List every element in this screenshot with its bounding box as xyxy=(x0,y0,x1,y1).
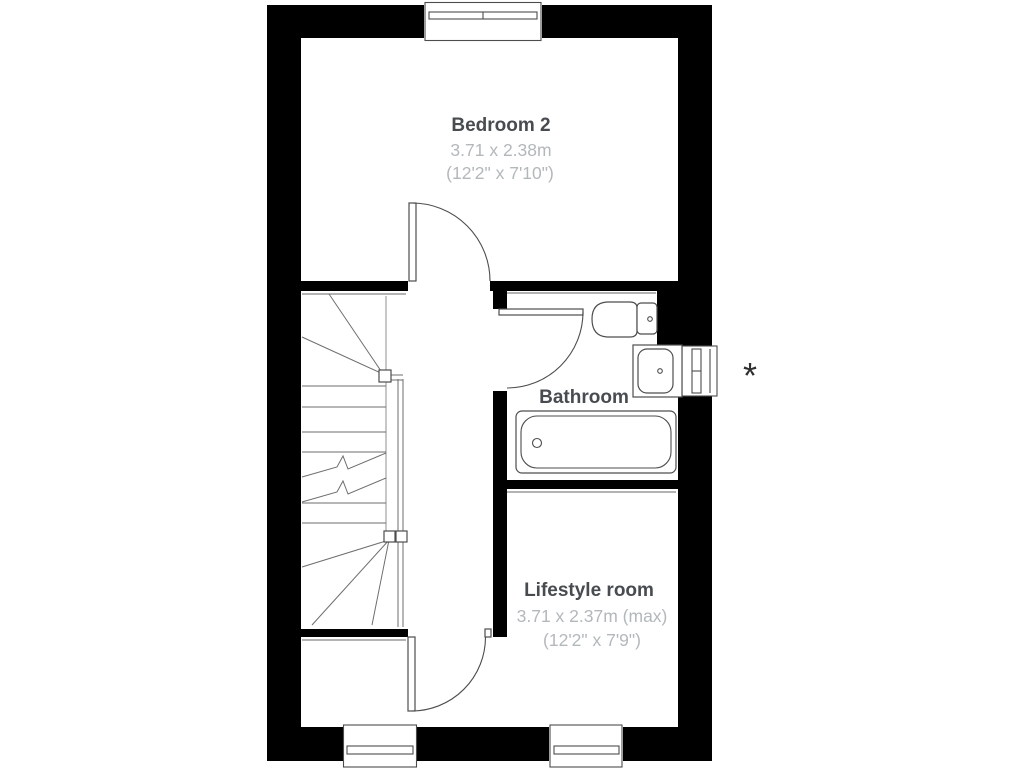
wall-stairs-south xyxy=(301,629,408,637)
window-glazing xyxy=(554,746,619,754)
door-bathroom xyxy=(499,309,583,388)
door-leaf xyxy=(408,637,415,711)
lifestyle-room-size-imperial: (12'2" x 7'9") xyxy=(543,630,641,650)
stair-winder-bottom-3 xyxy=(372,540,389,625)
stair-railing-upper xyxy=(398,379,403,531)
wall-bathroom-south xyxy=(507,480,678,489)
lifestyle-room-size-metric: 3.71 x 2.37m (max) xyxy=(517,606,668,626)
stair-winder-bottom-1 xyxy=(302,540,389,567)
door-swing-arc xyxy=(507,312,583,388)
window-lifestyle-south-right xyxy=(549,725,623,767)
stair-break-line-1 xyxy=(302,453,386,477)
wall-bathroom-west-upper xyxy=(493,281,507,309)
toilet-bowl xyxy=(592,302,637,337)
door-swing-arc xyxy=(412,203,490,281)
wall-bathroom-west-lower xyxy=(493,391,507,637)
floor-plan-page: Bedroom 2 3.71 x 2.38m (12'2" x 7'10") B… xyxy=(0,0,1024,768)
door-swing-arc xyxy=(412,637,486,711)
bedroom2-size-metric: 3.71 x 2.38m xyxy=(450,140,551,160)
bathroom-label: Bathroom xyxy=(539,387,629,408)
door-bedroom2 xyxy=(409,203,490,281)
stair-railing-lower xyxy=(398,542,403,627)
stair-newel-bottom-left xyxy=(384,531,395,542)
toilet-cistern xyxy=(637,303,657,334)
stair-winder-bottom-2 xyxy=(312,540,389,625)
wall-bottom xyxy=(267,727,712,761)
wall-left xyxy=(267,5,301,761)
stair-railing-connector xyxy=(391,375,403,380)
wall-bedroom-divider-left xyxy=(301,281,408,291)
bedroom2-size-imperial: (12'2" x 7'10") xyxy=(446,163,554,183)
window-frame xyxy=(425,3,541,41)
door-leaf xyxy=(499,309,583,315)
asterisk-annotation: * xyxy=(743,355,757,396)
wall-bedroom-divider-right xyxy=(490,281,678,291)
door-leaf xyxy=(409,203,416,281)
window-lifestyle-south-left xyxy=(343,725,417,767)
stair-break-line-2 xyxy=(302,478,386,502)
wall-bathroom-alcove xyxy=(657,281,678,345)
window-bathroom-east xyxy=(678,346,718,396)
window-bedroom-north xyxy=(424,2,542,41)
window-glazing xyxy=(347,746,413,754)
floor-plan: Bedroom 2 3.71 x 2.38m (12'2" x 7'10") B… xyxy=(0,0,1024,768)
staircase xyxy=(302,294,407,627)
stair-newel-bottom-right xyxy=(396,531,407,542)
basin-bowl xyxy=(638,349,673,393)
door-lifestyle-room xyxy=(408,629,491,711)
stair-newel-top xyxy=(379,370,391,382)
bedroom2-label: Bedroom 2 xyxy=(451,115,550,136)
door-strike-jamb xyxy=(485,629,491,637)
bathtub-outer xyxy=(516,411,676,473)
lifestyle-room-label: Lifestyle room xyxy=(524,580,654,601)
